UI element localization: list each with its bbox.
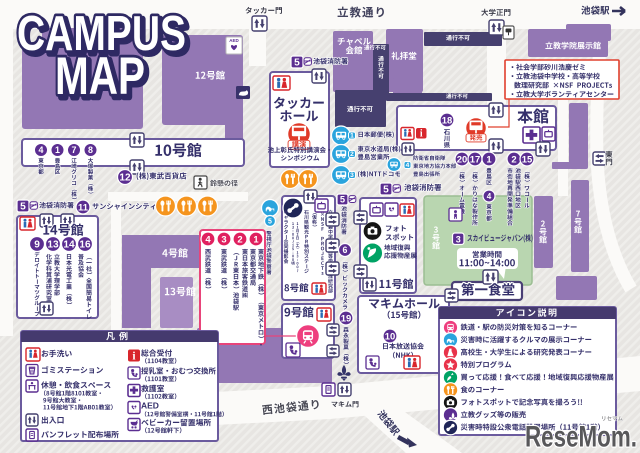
svg-text:3: 3 — [456, 234, 461, 244]
svg-text:5: 5 — [383, 184, 389, 195]
svg-text:4: 4 — [205, 234, 211, 245]
svg-text:6: 6 — [343, 245, 348, 255]
svg-text:2: 2 — [237, 234, 242, 245]
svg-text:3: 3 — [221, 234, 226, 245]
svg-text:8: 8 — [88, 145, 93, 155]
svg-text:1: 1 — [55, 145, 60, 155]
svg-text:AED: AED — [141, 401, 159, 411]
svg-text:4: 4 — [406, 162, 410, 169]
svg-text:1: 1 — [350, 133, 354, 140]
svg-text:i: i — [420, 129, 423, 140]
svg-text:14: 14 — [63, 240, 75, 251]
svg-text:1: 1 — [253, 234, 258, 245]
svg-text:10: 10 — [385, 331, 396, 342]
svg-text:12: 12 — [119, 173, 131, 184]
svg-text:7: 7 — [72, 145, 77, 155]
svg-text:3: 3 — [350, 172, 354, 179]
svg-text:9: 9 — [34, 240, 40, 251]
svg-text:20: 20 — [457, 154, 468, 165]
svg-text:5: 5 — [268, 219, 272, 226]
svg-text:13: 13 — [47, 240, 59, 251]
svg-text:4: 4 — [487, 192, 492, 201]
svg-text:16: 16 — [79, 240, 91, 251]
svg-text:17: 17 — [470, 154, 481, 165]
svg-text:15: 15 — [522, 154, 533, 165]
svg-text:19: 19 — [341, 313, 352, 324]
svg-text:ReseMom.: ReseMom. — [525, 421, 637, 453]
svg-text:2: 2 — [350, 151, 354, 158]
svg-text:5: 5 — [294, 57, 300, 68]
svg-text:2: 2 — [511, 154, 516, 165]
svg-text:18: 18 — [442, 115, 453, 126]
svg-text:i: i — [132, 350, 135, 362]
svg-text:5: 5 — [340, 195, 345, 205]
svg-text:5: 5 — [20, 201, 26, 212]
svg-text:AED: AED — [229, 38, 239, 43]
svg-text:4: 4 — [39, 145, 44, 155]
svg-text:MAP: MAP — [55, 47, 145, 106]
svg-text:11: 11 — [78, 202, 88, 213]
svg-text:1: 1 — [486, 154, 491, 165]
